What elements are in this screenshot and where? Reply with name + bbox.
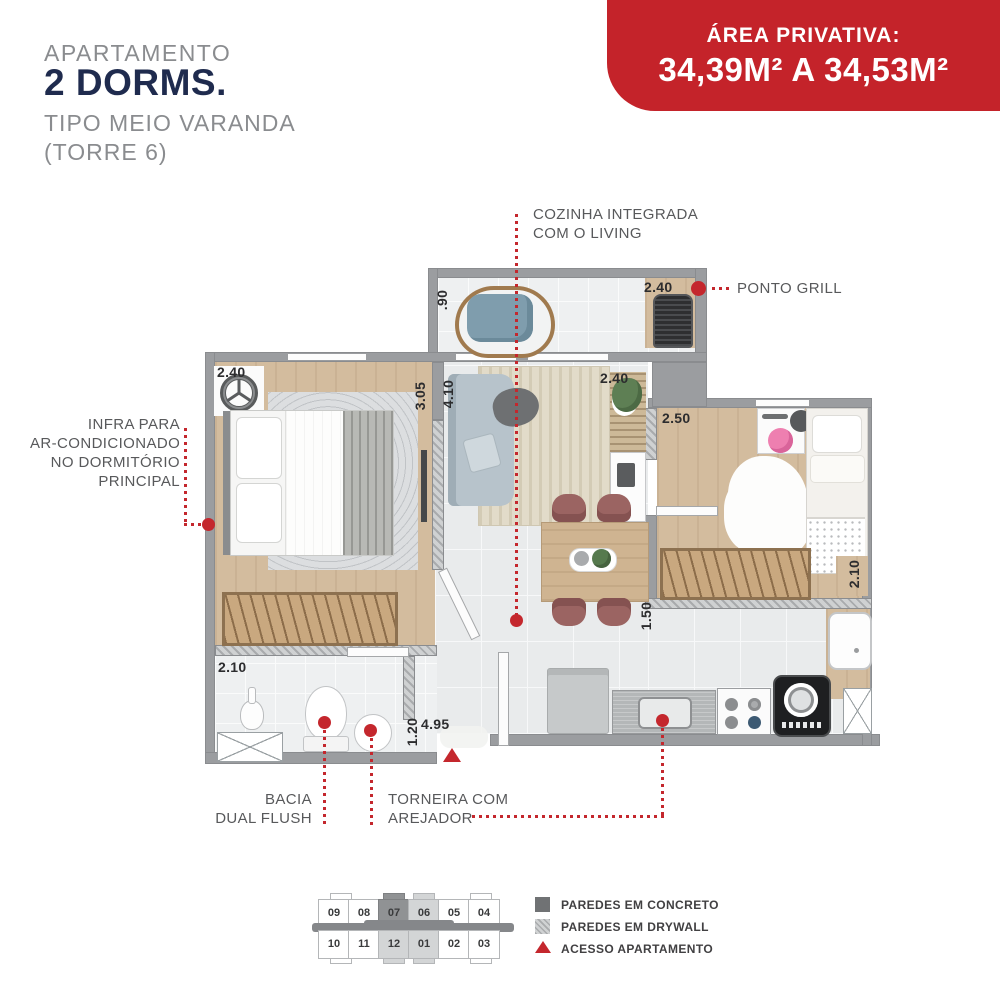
keyplan: 09 08 07 06 05 04 10 11 12 01 02 03	[318, 893, 513, 963]
bed-pillow-2	[236, 483, 282, 543]
meas-dorm1-width: 2.40	[217, 364, 245, 380]
table-plant	[592, 549, 611, 568]
infra-leader-vline	[184, 428, 187, 524]
dorm2-door-leaf	[656, 506, 718, 516]
armchair-cushion	[467, 294, 533, 342]
washer-controls	[782, 722, 822, 728]
dorm1-wardrobe-rack	[222, 592, 398, 646]
meas-bath-length: 1.20	[404, 718, 420, 746]
keyplan-cell: 11	[348, 930, 380, 959]
meas-varanda-width: 2.40	[644, 279, 672, 295]
torneira-kitchen-vline	[661, 728, 664, 818]
dorm1-tv-panel	[421, 450, 427, 522]
single-bed-cushion	[810, 455, 865, 483]
legend-drywall-label: PAREDES EM DRYWALL	[561, 920, 709, 934]
meas-corridor: 1.50	[638, 602, 654, 630]
legend-drywall-swatch	[535, 919, 550, 934]
single-bed-pillow	[812, 415, 862, 453]
bath-wall-stub	[403, 656, 415, 720]
callout-cozinha-line2: COM O LIVING	[533, 224, 698, 243]
cozinha-leader-dot	[510, 614, 523, 627]
torneira-kitchen-hline	[472, 815, 664, 818]
grill-leader-line	[712, 287, 730, 290]
callout-cozinha: COZINHA INTEGRADA COM O LIVING	[533, 205, 698, 243]
callout-bacia-line2: DUAL FLUSH	[192, 809, 312, 828]
burner-4	[748, 716, 761, 729]
callout-torneira: TORNEIRA COM AREJADOR	[388, 790, 508, 828]
legend: PAREDES EM CONCRETO PAREDES EM DRYWALL A…	[535, 895, 785, 965]
meas-dorm1-length: 3.05	[412, 382, 428, 410]
living-window-2	[527, 353, 609, 361]
callout-cozinha-line1: COZINHA INTEGRADA	[533, 205, 698, 224]
legend-access-triangle	[535, 941, 551, 953]
callout-infra-ac: INFRA PARA AR-CONDICIONADO NO DORMITÓRIO…	[30, 415, 180, 491]
grill	[653, 294, 693, 348]
callout-bacia-line1: BACIA	[192, 790, 312, 809]
meas-bath-width: 2.10	[218, 659, 246, 675]
washing-machine	[773, 675, 831, 737]
bed-pillow-1	[236, 417, 282, 479]
meas-living-width: 2.40	[600, 370, 628, 386]
legend-access-label: ACESSO APARTAMENTO	[561, 942, 713, 956]
double-bed	[230, 410, 394, 556]
cozinha-leader-line	[515, 214, 518, 618]
bed-duvet	[285, 411, 348, 555]
shower-box	[217, 732, 283, 762]
keyplan-cell: 12	[378, 930, 410, 959]
bacia-leader-line	[323, 730, 326, 828]
fridge	[547, 668, 609, 734]
dining-chair-4	[597, 598, 631, 626]
dorm2-pouf	[768, 428, 793, 453]
floorplan: .90 2.40 2.40 3.05 4.10 2.40 2.50 2.10 1…	[0, 0, 1000, 1000]
legend-concrete-label: PAREDES EM CONCRETO	[561, 898, 719, 912]
callout-infra-line1: INFRA PARA	[30, 415, 180, 434]
utility-shaft-box	[843, 688, 872, 734]
bath-door-leaf	[347, 647, 409, 657]
callout-infra-line2: AR-CONDICIONADO	[30, 434, 180, 453]
infra-leader-hline	[184, 523, 204, 526]
dorm2-wall-left-upper	[645, 408, 657, 460]
stove	[717, 688, 771, 735]
meas-living-length: 4.10	[440, 380, 456, 408]
callout-ponto-grill: PONTO GRILL	[737, 279, 842, 298]
varanda-wall-top	[428, 268, 707, 278]
bed-throw-blanket	[343, 411, 393, 555]
callout-infra-line3: NO DORMITÓRIO	[30, 453, 180, 472]
dining-chair-1	[552, 494, 586, 522]
laundry-tub-drain	[854, 648, 859, 653]
shower-stem	[248, 687, 256, 704]
meas-dorm2-width: 2.50	[662, 410, 690, 426]
column-living-dorm2	[652, 362, 707, 407]
shower-head	[240, 700, 264, 730]
callout-bacia: BACIA DUAL FLUSH	[192, 790, 312, 828]
keyplan-cell: 03	[468, 930, 500, 959]
keyplan-cell: 01	[408, 930, 440, 959]
legend-concrete-swatch	[535, 897, 550, 912]
callout-infra-line4: PRINCIPAL	[30, 472, 180, 491]
torneira-bath-dot	[364, 724, 377, 737]
page: APARTAMENTO 2 DORMS. TIPO MEIO VARANDA (…	[0, 0, 1000, 1000]
burner-3	[725, 716, 738, 729]
single-bed	[806, 408, 868, 574]
dining-chair-2	[597, 494, 631, 522]
cloud-rug	[728, 456, 808, 546]
grill-leader-dot	[691, 281, 706, 296]
dorm1-wall-right	[432, 420, 444, 570]
toilet	[305, 686, 347, 740]
dining-chair-3	[552, 598, 586, 626]
varanda-wall-left	[428, 268, 438, 362]
infra-leader-dot	[202, 518, 215, 531]
meas-varanda-depth: .90	[434, 290, 450, 310]
callout-torneira-line2: AREJADOR	[388, 809, 508, 828]
table-bowl	[574, 551, 589, 566]
torneira-kitchen-dot	[656, 714, 669, 727]
dorm2-window	[755, 399, 810, 407]
laundry-tub	[828, 612, 872, 670]
dorm1-window	[287, 353, 367, 361]
entry-door-leaf	[498, 652, 509, 746]
dorm2-desk-lamp	[762, 414, 788, 419]
access-triangle	[443, 748, 461, 762]
keyplan-cell: 02	[438, 930, 470, 959]
meas-dorm2-length: 2.10	[846, 560, 862, 588]
desk-laptop	[617, 463, 635, 487]
bacia-leader-dot	[318, 716, 331, 729]
washer-drum	[784, 683, 818, 717]
sofa-pillow	[462, 432, 502, 473]
burner-2	[748, 698, 761, 711]
meas-entry-span: 4.95	[421, 716, 449, 732]
torneira-bath-line	[370, 738, 373, 828]
bed-headboard	[223, 411, 230, 555]
toilet-tank	[303, 736, 349, 752]
dorm2-wardrobe-rack	[660, 548, 811, 600]
burner-1	[725, 698, 738, 711]
keyplan-cell: 10	[318, 930, 350, 959]
callout-torneira-line1: TORNEIRA COM	[388, 790, 508, 809]
varanda-armchair	[455, 286, 555, 358]
